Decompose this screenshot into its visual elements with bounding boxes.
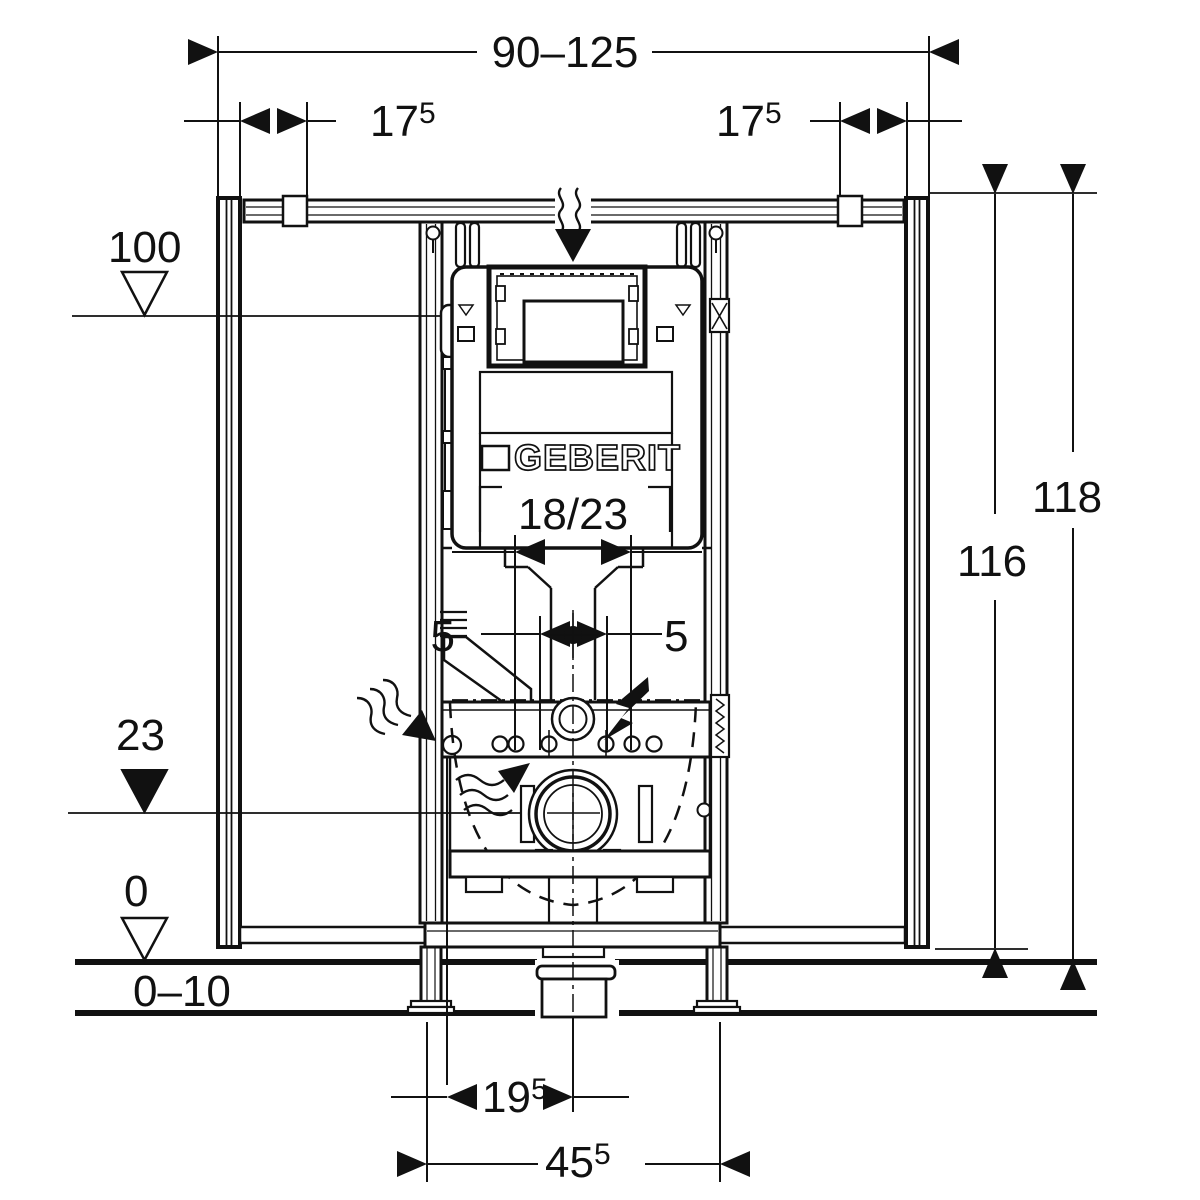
dim-rail-offsets: [184, 102, 962, 200]
dim-19-5-label: 195: [482, 1073, 548, 1122]
level-triangle-100: [122, 272, 167, 315]
level-triangle-23: [122, 770, 167, 812]
dim-height-118-label: 118: [1032, 473, 1102, 522]
side-rail-right: [906, 198, 928, 947]
installation-frame-drawing: GEBERIT: [0, 0, 1200, 1200]
arrow-down-icon: [555, 229, 591, 262]
logo-square: [482, 446, 509, 470]
dim-rail-offset-left-label: 175: [370, 97, 436, 146]
lower-plate: [450, 851, 710, 923]
dim-floor-buildup-label: 0–10: [133, 967, 231, 1016]
dim-rail-offset-right-label: 175: [716, 97, 782, 146]
technical-drawing-page: GEBERIT: [0, 0, 1200, 1200]
bar-collar-right: [838, 196, 862, 226]
inspection-window: [524, 301, 623, 362]
airflow-top-icon: [555, 188, 591, 262]
dim-level-100-label: 100: [108, 223, 181, 272]
dim-height-116-label: 116: [957, 537, 1027, 586]
hanger-bolt-left: [427, 227, 440, 240]
dim-5-right-label: 5: [664, 612, 688, 661]
fixing-knob: [698, 804, 711, 817]
dim-level-0-label: 0: [124, 867, 148, 916]
hanger-bolt-right: [710, 227, 723, 240]
dim-5-left-label: 5: [431, 612, 455, 661]
drain-outlet: [521, 770, 652, 862]
bend-cover-plate: [480, 372, 672, 433]
dim-level-23-label: 23: [116, 711, 165, 760]
leg-right: [694, 947, 740, 1013]
side-rail-left: [218, 198, 240, 947]
upright-left: [420, 222, 442, 923]
level-triangle-0: [122, 918, 167, 960]
flush-pipe: [505, 549, 643, 700]
brand-logo: GEBERIT: [514, 437, 681, 478]
dim-45-5-label: 455: [545, 1138, 611, 1187]
airflow-inner-icon: [456, 763, 530, 815]
dim-width-range-label: 90–125: [492, 28, 639, 77]
dim-flush-pipe-label: 18/23: [518, 490, 628, 539]
bar-collar-left: [283, 196, 307, 226]
drain-stub: [535, 960, 619, 1020]
